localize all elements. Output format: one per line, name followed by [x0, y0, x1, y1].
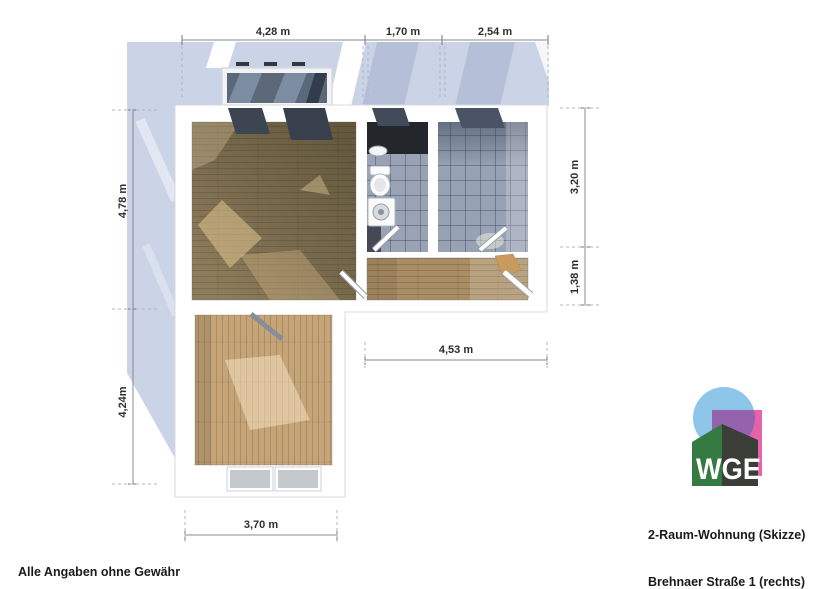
toilet-icon: [370, 166, 390, 196]
room-hallway: [341, 254, 531, 300]
room-living: [192, 108, 356, 300]
logo-text: WGE: [696, 453, 761, 486]
dim-label-right-1: 3,20 m: [569, 160, 581, 194]
disclaimer-text: Alle Angaben ohne Gewähr: [18, 565, 180, 579]
skylight-window-icon: [283, 108, 333, 140]
balcony: [222, 62, 332, 108]
window-mark-icon: [236, 62, 249, 66]
dim-label-top-1: 4,28 m: [256, 26, 290, 38]
room-kitchen: [438, 108, 528, 252]
info-street: Brehnaer Straße 1 (rechts): [648, 575, 805, 589]
room-bedroom: [195, 314, 332, 491]
bedroom-window-icon: [275, 467, 321, 491]
washing-machine-icon: [368, 198, 395, 226]
window-mark-icon: [292, 62, 305, 66]
room-bathroom: [367, 108, 428, 252]
dim-label-middle: 4,53 m: [439, 344, 473, 356]
dim-label-top-2: 1,70 m: [386, 26, 420, 38]
window-mark-icon: [264, 62, 277, 66]
dim-label-top-3: 2,54 m: [478, 26, 512, 38]
skylight-window-icon: [372, 108, 410, 126]
dim-label-bottom: 3,70 m: [244, 519, 278, 531]
floorplan-page: 4,28 m 1,70 m 2,54 m 4,78 m 4,24m 3,20 m…: [0, 0, 834, 589]
dim-label-left-1: 4,78 m: [117, 184, 129, 218]
property-info: 2-Raum-Wohnung (Skizze) Brehnaer Straße …: [648, 497, 805, 589]
info-title: 2-Raum-Wohnung (Skizze): [648, 528, 805, 544]
dim-label-left-2: 4,24m: [117, 386, 129, 417]
dim-label-right-2: 1,38 m: [569, 260, 581, 294]
sink-icon: [369, 146, 387, 156]
skylight-window-icon: [455, 108, 505, 128]
bedroom-window-icon: [227, 467, 273, 491]
